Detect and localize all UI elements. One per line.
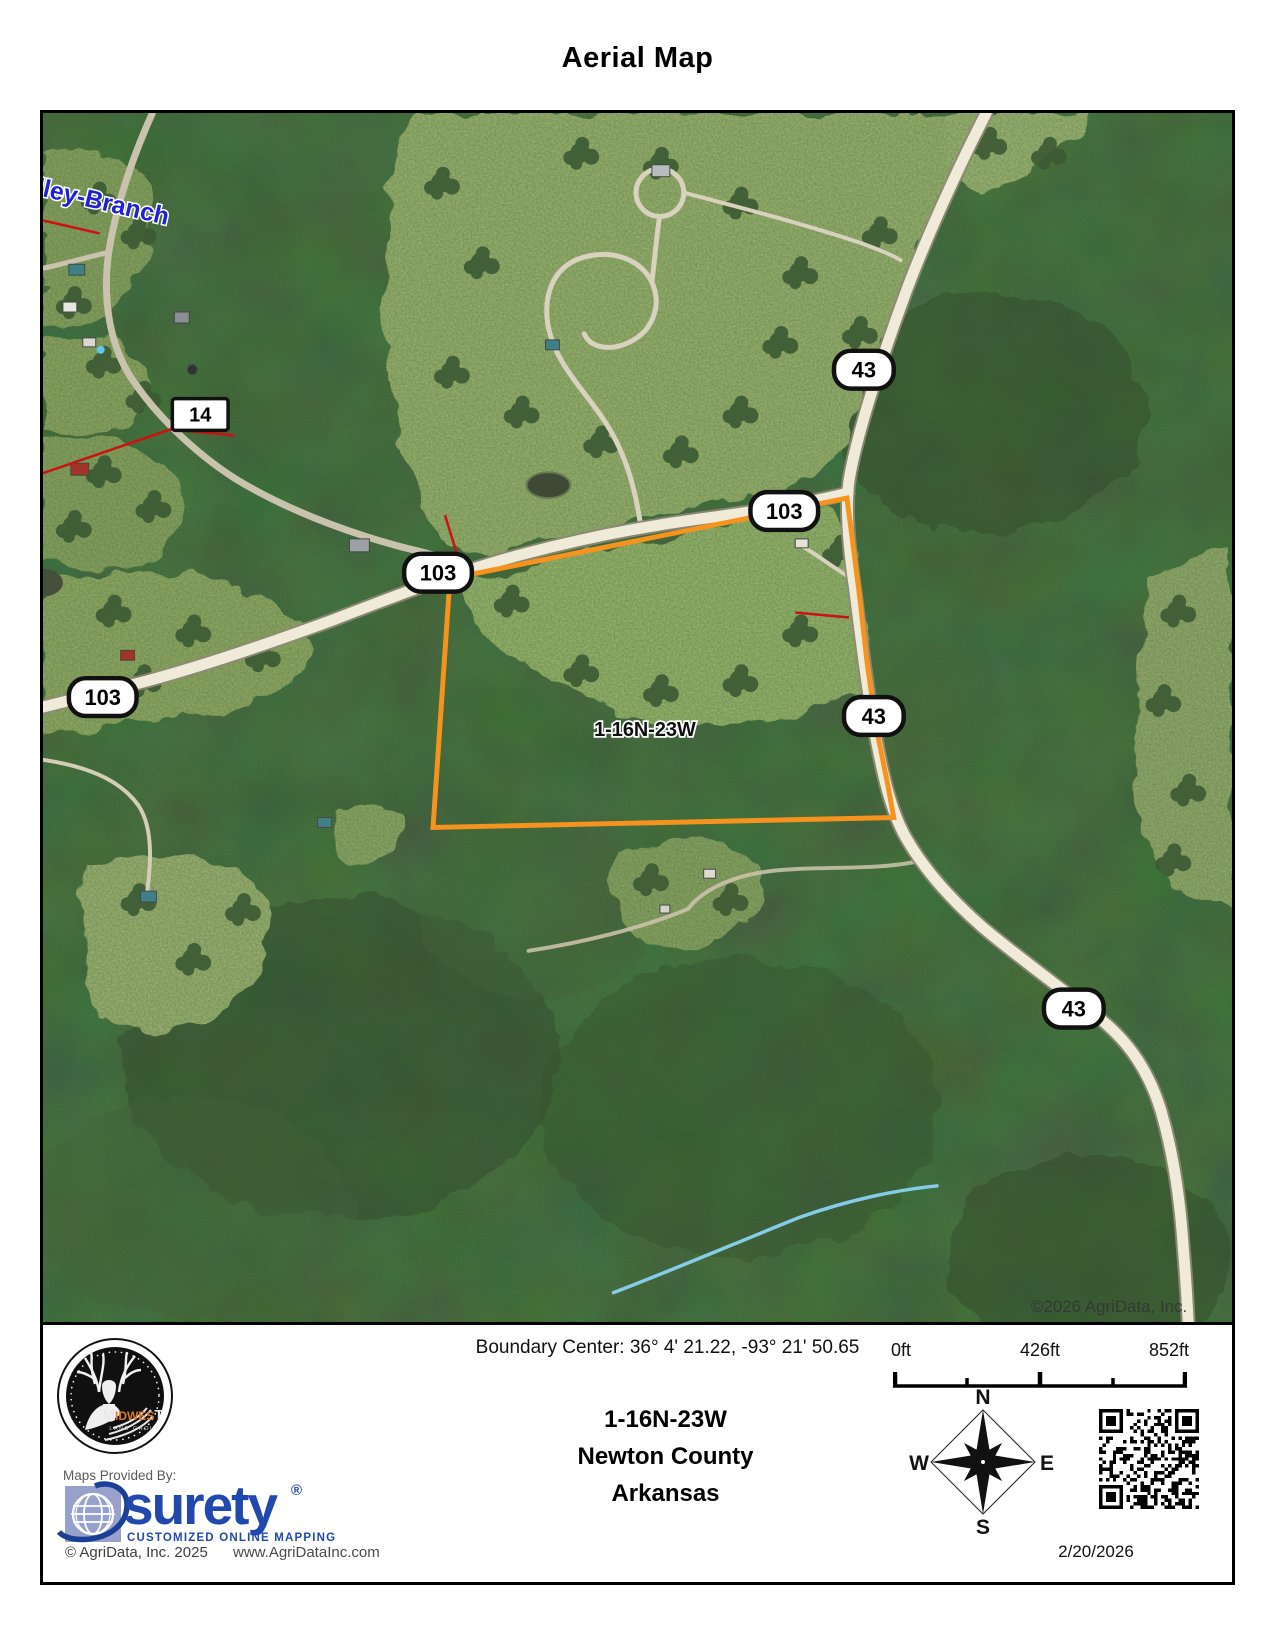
svg-text:43: 43 <box>862 704 886 729</box>
compass-west-label: W <box>909 1452 929 1475</box>
shield-14: 14 <box>172 399 228 431</box>
agridata-copyright: © AgriData, Inc. 2025 <box>65 1544 208 1561</box>
svg-text:103: 103 <box>84 685 120 710</box>
shield-43-south: 43 <box>1044 990 1104 1028</box>
svg-text:43: 43 <box>852 358 876 383</box>
shield-43-north: 43 <box>834 351 894 389</box>
area-identification: 1-16N-23W Newton County Arkansas <box>71 1401 1260 1512</box>
svg-text:14: 14 <box>189 404 211 426</box>
parcel-id: 1-16N-23W <box>71 1401 1260 1438</box>
shield-43-mid: 43 <box>844 697 904 735</box>
shield-103-mid: 103 <box>404 554 472 592</box>
state-name: Arkansas <box>71 1475 1260 1512</box>
map-footer: MIDWEST LAND GROUP Maps Provided By: sur… <box>40 1322 1235 1585</box>
scale-start-label: 0ft <box>891 1340 911 1361</box>
surety-tagline: CUSTOMIZED ONLINE MAPPING <box>127 1532 336 1544</box>
aerial-map: 14 43 103 103 103 <box>40 110 1235 1325</box>
aerial-map-page: Aerial Map <box>0 0 1275 1650</box>
scale-mid-label: 426ft <box>1020 1340 1060 1361</box>
map-date: 2/20/2026 <box>990 1542 1202 1562</box>
shield-103-east: 103 <box>750 492 818 530</box>
compass-north-label: N <box>975 1386 990 1409</box>
scale-end-label: 852ft <box>1149 1340 1189 1361</box>
compass-east-label: E <box>1040 1452 1054 1475</box>
qr-code <box>1099 1409 1199 1509</box>
parcel-label: 1-16N-23W <box>594 719 696 741</box>
agridata-website: www.AgriDataInc.com <box>233 1544 380 1561</box>
map-watermark: ©2026 AgriData, Inc. <box>1031 1297 1187 1316</box>
county-name: Newton County <box>71 1438 1260 1475</box>
svg-text:43: 43 <box>1062 997 1086 1022</box>
shield-103-west: 103 <box>69 678 137 716</box>
page-title: Aerial Map <box>40 42 1235 75</box>
aerial-imagery: 14 43 103 103 103 <box>43 113 1232 1322</box>
svg-text:103: 103 <box>420 561 456 586</box>
compass-south-label: S <box>976 1516 990 1539</box>
svg-text:103: 103 <box>766 499 802 524</box>
compass-rose-icon: N E S W <box>905 1384 1061 1540</box>
